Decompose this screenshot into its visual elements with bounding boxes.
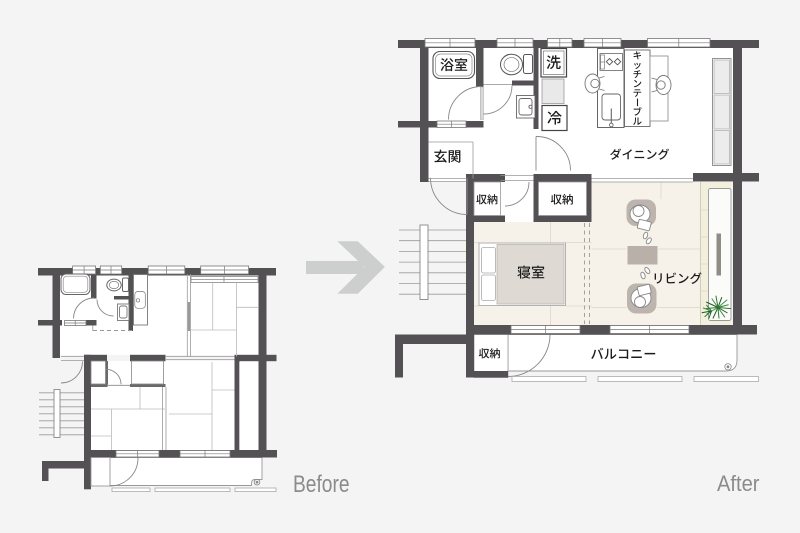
svg-text:Before: Before [293,471,350,498]
svg-text:After: After [717,471,760,496]
